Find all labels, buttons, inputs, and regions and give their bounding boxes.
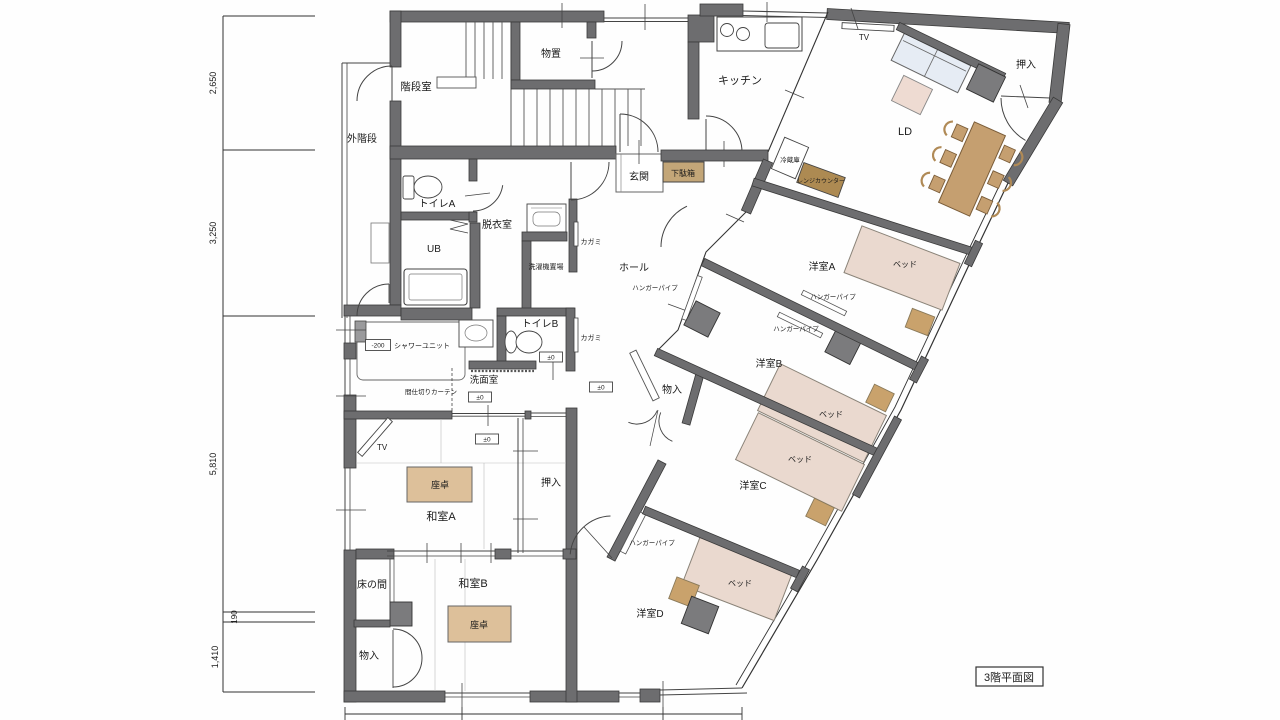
svg-text:ハンガーパイプ: ハンガーパイプ [629, 538, 675, 547]
svg-text:和室A: 和室A [426, 509, 456, 523]
svg-text:洋室C: 洋室C [739, 479, 766, 492]
svg-text:ハンガーパイプ: ハンガーパイプ [632, 283, 678, 292]
svg-text:押入: 押入 [541, 476, 561, 489]
svg-text:ハンガーパイプ: ハンガーパイプ [773, 324, 819, 333]
svg-text:ベッド: ベッド [819, 410, 843, 419]
svg-text:5,810: 5,810 [208, 453, 218, 476]
svg-text:物置: 物置 [541, 47, 561, 60]
svg-text:1,410: 1,410 [210, 646, 220, 669]
svg-text:±0: ±0 [547, 354, 555, 361]
svg-text:洗濯機置場: 洗濯機置場 [529, 262, 564, 271]
svg-text:ベッド: ベッド [728, 579, 752, 588]
svg-text:洋室D: 洋室D [636, 607, 663, 620]
svg-text:外階段: 外階段 [347, 132, 377, 145]
svg-text:物入: 物入 [662, 383, 682, 396]
svg-text:階段室: 階段室 [400, 80, 432, 93]
svg-text:冷蔵庫: 冷蔵庫 [780, 155, 800, 164]
svg-text:-200: -200 [371, 342, 384, 349]
svg-text:カガミ: カガミ [581, 333, 602, 342]
svg-text:±0: ±0 [597, 384, 605, 391]
svg-text:±0: ±0 [476, 394, 484, 401]
svg-text:座卓: 座卓 [431, 479, 449, 490]
svg-text:3階平面図: 3階平面図 [984, 670, 1034, 684]
svg-text:玄関: 玄関 [629, 170, 649, 183]
svg-text:TV: TV [377, 443, 388, 452]
svg-text:UB: UB [427, 244, 441, 255]
svg-text:間仕切りカーテン: 間仕切りカーテン [405, 387, 457, 396]
svg-text:トイレB: トイレB [522, 319, 559, 330]
svg-text:トイレA: トイレA [419, 199, 456, 210]
svg-text:洋室A: 洋室A [809, 260, 836, 273]
svg-text:ベッド: ベッド [788, 455, 812, 464]
svg-text:和室B: 和室B [458, 576, 487, 590]
svg-text:押入: 押入 [1016, 58, 1036, 71]
svg-text:TV: TV [859, 33, 870, 42]
svg-text:190: 190 [230, 610, 239, 624]
svg-text:脱衣室: 脱衣室 [482, 218, 512, 231]
svg-text:ホール: ホール [619, 262, 649, 274]
svg-text:下駄箱: 下駄箱 [671, 168, 695, 178]
svg-text:洗面室: 洗面室 [470, 374, 499, 386]
svg-text:キッチン: キッチン [718, 74, 762, 87]
svg-text:レンジカウンター: レンジカウンター [797, 177, 845, 185]
svg-text:洋室B: 洋室B [756, 357, 783, 370]
svg-text:カガミ: カガミ [581, 237, 602, 246]
svg-text:物入: 物入 [359, 649, 379, 662]
svg-text:床の間: 床の間 [357, 578, 387, 591]
svg-text:ベッド: ベッド [893, 260, 917, 269]
svg-text:ハンガーパイプ: ハンガーパイプ [810, 292, 856, 301]
svg-text:3,250: 3,250 [208, 222, 218, 245]
svg-text:LD: LD [898, 126, 912, 138]
svg-text:±0: ±0 [483, 436, 491, 443]
svg-text:シャワーユニット: シャワーユニット [394, 342, 450, 350]
svg-text:座卓: 座卓 [470, 619, 488, 630]
svg-text:2,650: 2,650 [208, 72, 218, 95]
